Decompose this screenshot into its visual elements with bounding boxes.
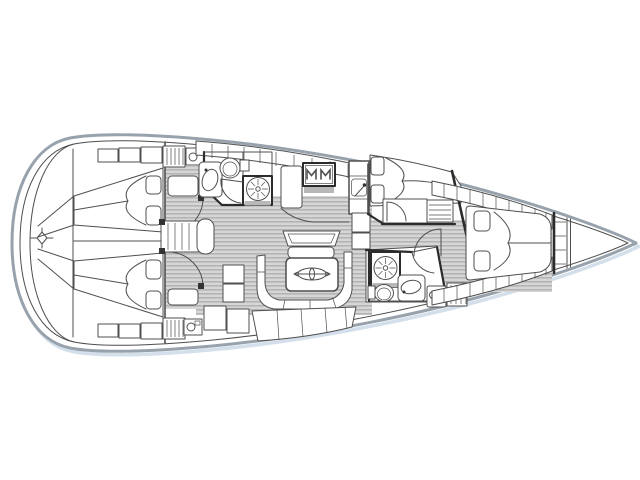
saloon-cabinet [352, 233, 370, 249]
pillow [146, 291, 161, 309]
shower-stall [371, 252, 400, 288]
wardrobe-louver [163, 318, 185, 339]
pillow [146, 260, 161, 279]
bottom-step [197, 219, 214, 254]
pillow [371, 157, 384, 175]
pillow [146, 206, 161, 225]
v-berth [466, 206, 551, 280]
hull-side-locker [227, 309, 249, 333]
saloon-cabinet [352, 213, 370, 232]
shelf-box [98, 324, 118, 337]
shelf-box [141, 147, 162, 163]
settee-end-locker [223, 265, 244, 283]
galley-sink-unit [349, 161, 369, 214]
pillow [474, 211, 490, 231]
under-settee-lockers [252, 307, 356, 341]
toilet [368, 285, 394, 302]
yacht-floor-plan: Sailing yacht interior layout floor plan… [0, 0, 640, 480]
pillow [146, 176, 161, 194]
vanity-basin-icon [184, 319, 202, 335]
shelf-box [141, 323, 162, 339]
under-berth-locker [383, 199, 427, 223]
cabin-bench [168, 176, 198, 196]
saloon-table [286, 258, 338, 291]
shelf-box [119, 148, 140, 162]
oven-front [304, 187, 334, 193]
hull-side-locker [204, 306, 226, 330]
bench-seat [283, 231, 340, 258]
pillow [474, 251, 490, 271]
pillow [371, 185, 384, 203]
settee-end-locker [223, 284, 244, 302]
companionway-steps [159, 219, 214, 254]
shelf-box [119, 324, 140, 338]
washbasin [398, 275, 425, 301]
wardrobe-louver [163, 146, 185, 167]
shelf-box [98, 149, 118, 162]
floor-plan-canvas: Sailing yacht interior layout floor plan… [0, 0, 640, 480]
fridge-counter [281, 166, 302, 208]
shower-stall [243, 176, 272, 206]
cabin-bench [168, 289, 198, 305]
washbasin [199, 162, 222, 197]
louver-locker [427, 200, 453, 222]
stove [303, 163, 335, 193]
